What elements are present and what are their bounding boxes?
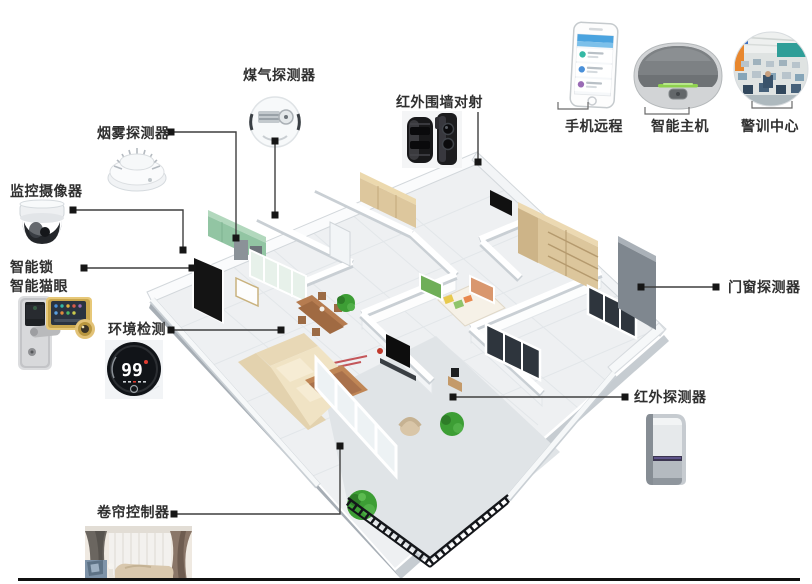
label-shutter: 卷帘控制器 <box>97 505 170 520</box>
label-environment: 环境检测 <box>108 322 166 337</box>
label-pir-detector: 红外探测器 <box>634 390 707 405</box>
bottom-rule <box>18 578 800 581</box>
label-smart-peephole: 智能猫眼 <box>10 279 68 294</box>
label-phone-remote: 手机远程 <box>565 119 623 134</box>
device-brackets <box>558 101 792 114</box>
smart-home-security-diagram: 99 <box>0 0 812 584</box>
label-gas-detector: 煤气探测器 <box>243 68 316 83</box>
label-smart-host: 智能主机 <box>651 119 709 134</box>
label-perimeter-beam: 红外围墙对射 <box>396 95 483 110</box>
label-smoke-detector: 烟雾探测器 <box>97 126 170 141</box>
label-smart-lock: 智能锁 <box>10 260 54 275</box>
connector-lines <box>0 0 812 584</box>
connector-shutter <box>174 446 340 514</box>
connector-camera <box>73 210 183 250</box>
label-door-window: 门窗探测器 <box>728 280 801 295</box>
label-camera: 监控摄像器 <box>10 184 83 199</box>
connector-smoke <box>171 132 236 238</box>
connector-markers <box>70 129 720 518</box>
label-alarm-center: 警训中心 <box>741 119 799 134</box>
